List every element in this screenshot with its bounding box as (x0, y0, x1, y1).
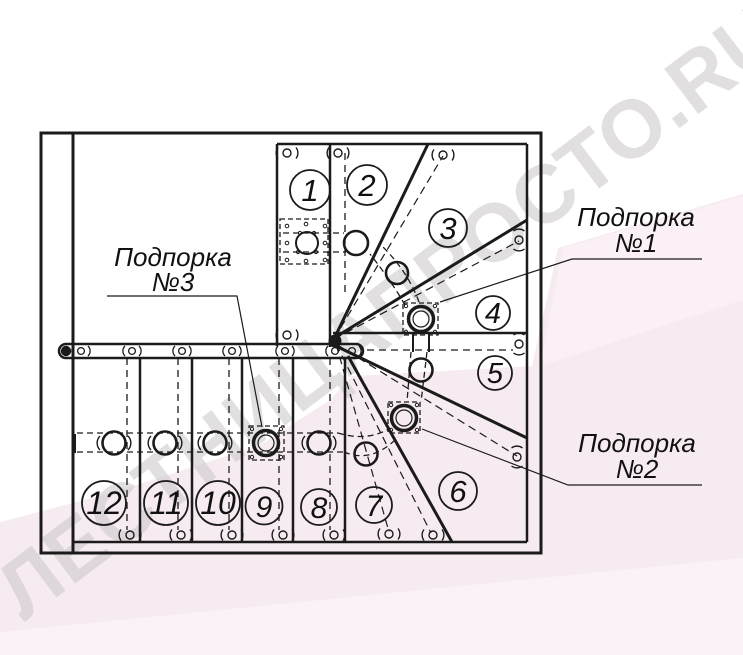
step-11-number: 11 (149, 485, 182, 521)
svg-text:№3: №3 (152, 267, 195, 297)
step-10-marker: 10 (196, 481, 240, 525)
step-11-marker: 11 (144, 481, 188, 525)
step-2-number: 2 (357, 168, 375, 203)
svg-text:№2: №2 (616, 454, 659, 484)
step-6-number: 6 (449, 474, 467, 509)
step-12-number: 12 (86, 485, 122, 521)
svg-text:№1: №1 (615, 228, 658, 258)
step-4-number: 4 (485, 298, 501, 330)
handrail-end-cap (61, 346, 71, 356)
step-5-number: 5 (487, 358, 504, 390)
step-7-number: 7 (366, 490, 384, 523)
step-3-number: 3 (439, 211, 456, 246)
step-12-marker: 12 (82, 481, 126, 525)
staircase-plan-page: ЛЕСТНИЦАПРОСТО.RU (0, 0, 743, 655)
staircase-plan-canvas: ЛЕСТНИЦАПРОСТО.RU (0, 0, 743, 655)
step-1-number: 1 (301, 173, 318, 208)
step-8-number: 8 (311, 492, 328, 525)
step-10-number: 10 (200, 485, 236, 521)
step-9-number: 9 (256, 491, 273, 524)
